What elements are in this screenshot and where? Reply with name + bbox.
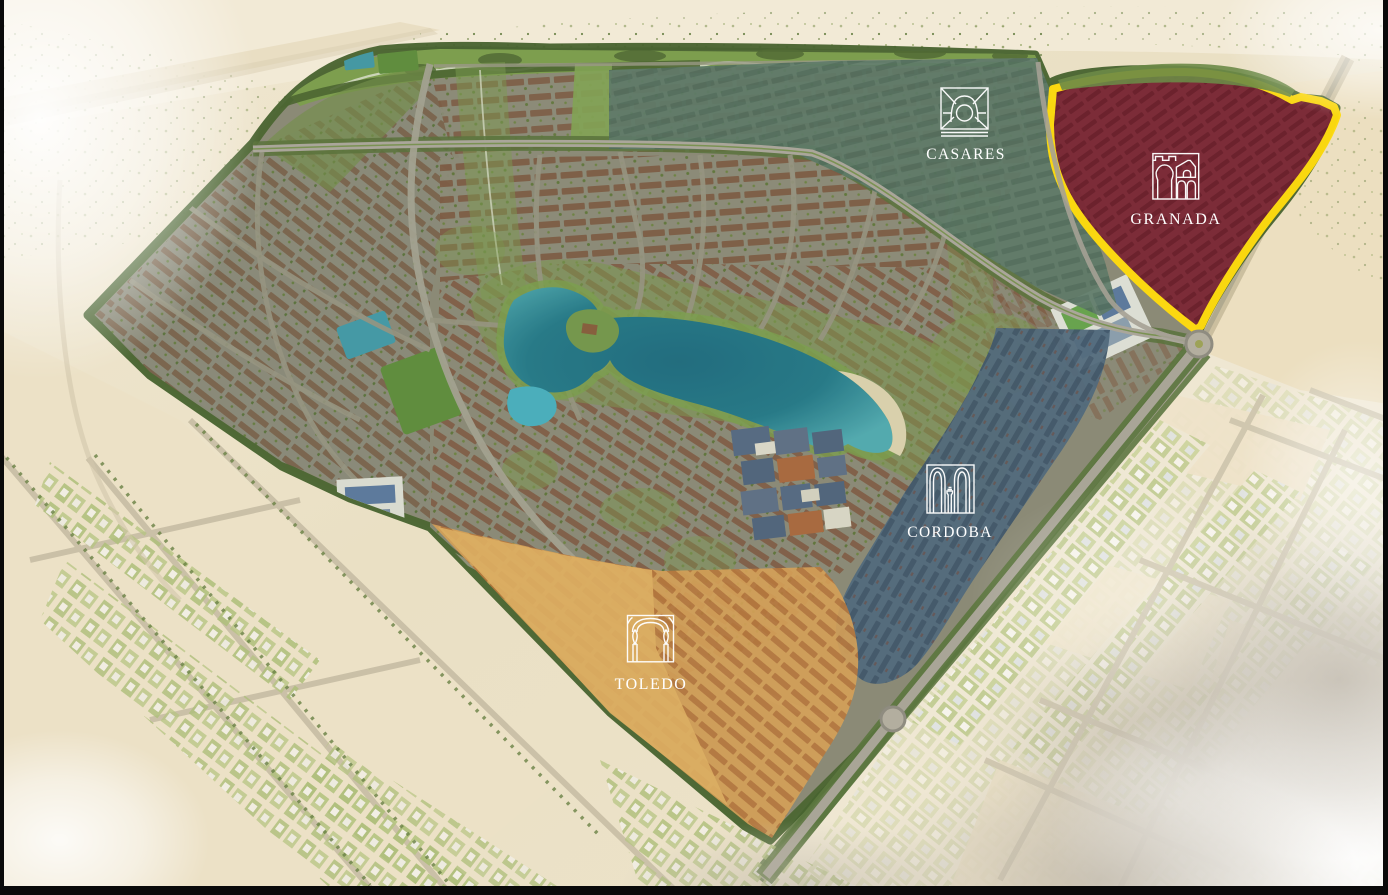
svg-text:TOLEDO: TOLEDO (615, 676, 688, 693)
svg-text:GRANADA: GRANADA (1130, 211, 1221, 228)
svg-text:CORDOBA: CORDOBA (907, 524, 993, 541)
svg-text:CASARES: CASARES (926, 146, 1006, 163)
